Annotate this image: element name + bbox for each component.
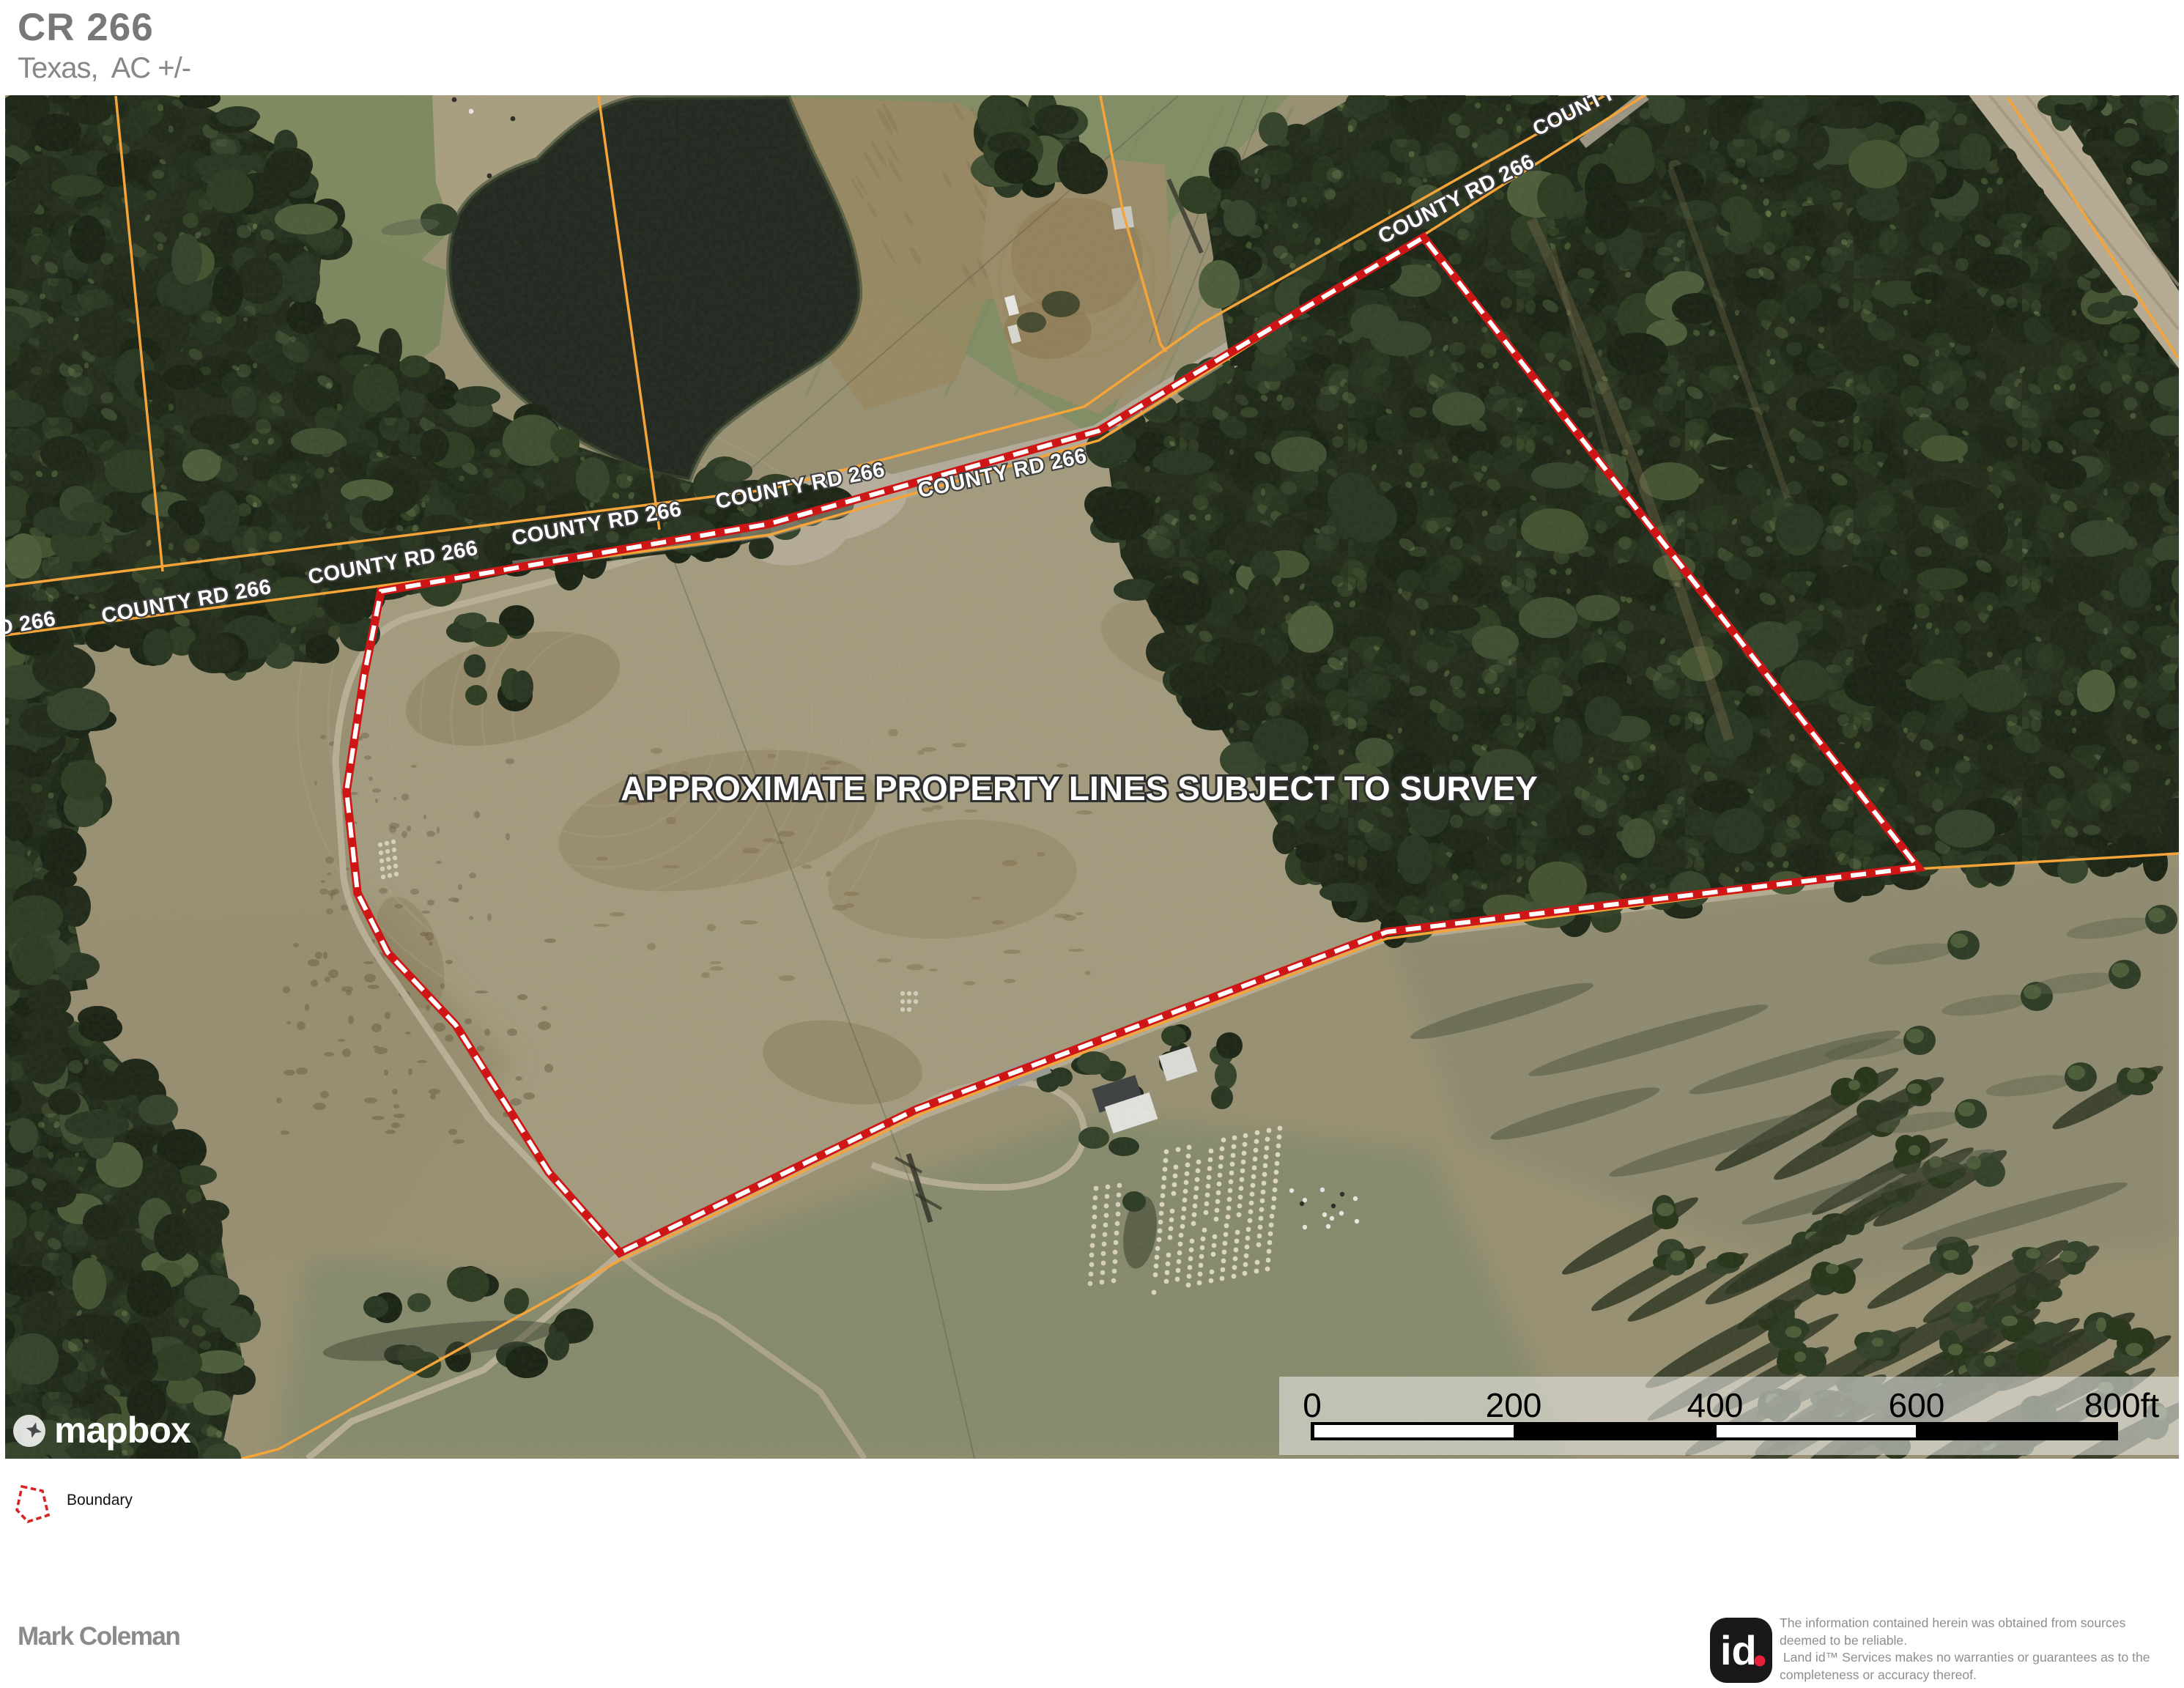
- svg-text:id: id: [1720, 1627, 1757, 1673]
- svg-text:mapbox: mapbox: [54, 1410, 191, 1451]
- svg-text:800ft: 800ft: [2084, 1386, 2160, 1424]
- svg-text:0: 0: [1303, 1386, 1322, 1424]
- svg-text:600: 600: [1889, 1386, 1945, 1424]
- svg-text:200: 200: [1486, 1386, 1542, 1424]
- svg-text:400: 400: [1687, 1386, 1744, 1424]
- svg-text:APPROXIMATE PROPERTY LINES SUB: APPROXIMATE PROPERTY LINES SUBJECT TO SU…: [621, 769, 1538, 807]
